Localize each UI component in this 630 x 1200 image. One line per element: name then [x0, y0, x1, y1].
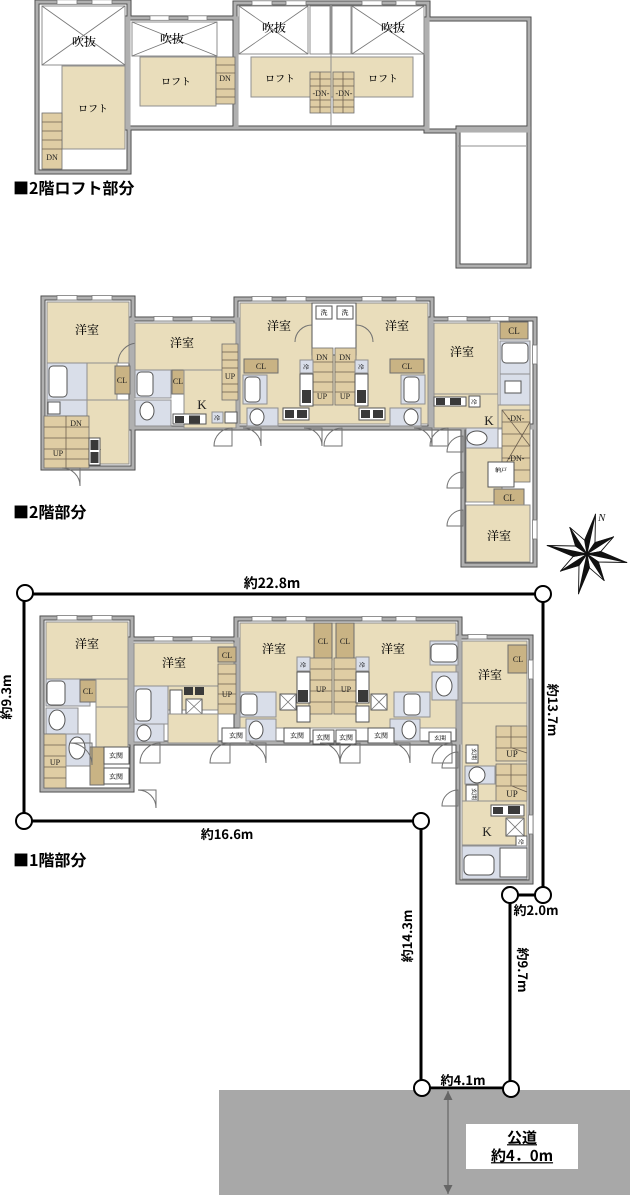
svg-text:UP: UP [225, 372, 236, 381]
svg-text:UP: UP [50, 758, 61, 767]
svg-text:UP: UP [53, 449, 64, 458]
svg-text:UP: UP [222, 690, 233, 699]
svg-text:CL: CL [513, 655, 523, 664]
svg-text:CL: CL [508, 326, 520, 336]
svg-text:UP: UP [317, 392, 328, 401]
svg-text:CL: CL [402, 362, 412, 371]
svg-text:K: K [482, 824, 492, 839]
svg-text:UP: UP [341, 685, 352, 694]
svg-text:CL: CL [318, 637, 328, 646]
svg-text:CL: CL [173, 377, 183, 386]
svg-text:UP: UP [506, 789, 518, 799]
svg-text:CL: CL [503, 493, 515, 503]
svg-text:UP: UP [506, 749, 518, 759]
svg-text:DN: DN [219, 74, 231, 83]
svg-text:CL: CL [340, 637, 350, 646]
svg-text:-DN-: -DN- [508, 414, 525, 423]
svg-text:DN: DN [339, 353, 351, 362]
svg-text:CL: CL [222, 651, 232, 660]
svg-text:K: K [484, 413, 494, 428]
svg-text:N: N [597, 512, 606, 524]
svg-text:CL: CL [256, 362, 266, 371]
svg-text:DN: DN [70, 419, 82, 428]
svg-text:DN: DN [46, 153, 58, 162]
svg-text:K: K [197, 397, 207, 412]
svg-text:-DN-: -DN- [336, 89, 353, 98]
svg-text:UP: UP [316, 685, 327, 694]
svg-text:UP: UP [340, 392, 351, 401]
svg-text:CL: CL [117, 376, 127, 385]
svg-text:DN: DN [316, 353, 328, 362]
svg-text:CL: CL [83, 687, 93, 696]
svg-text:-DN-: -DN- [313, 89, 330, 98]
